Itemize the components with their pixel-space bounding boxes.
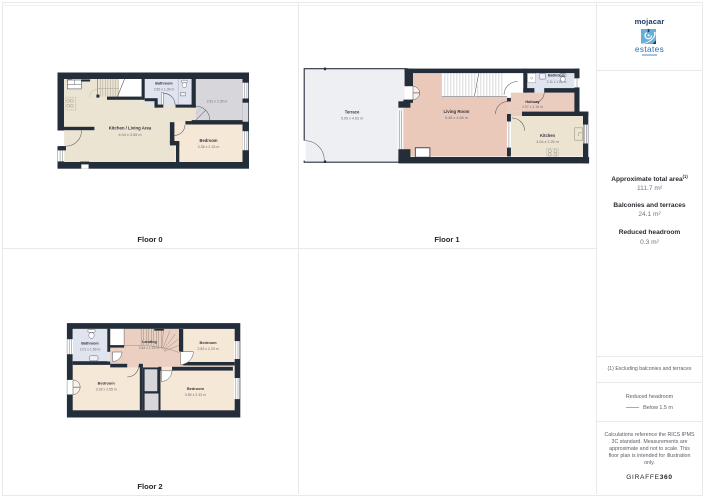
svg-text:Kitchen: Kitchen — [540, 133, 556, 138]
svg-text:Bedroom: Bedroom — [187, 386, 205, 391]
svg-text:3.36 x 2.15 m: 3.36 x 2.15 m — [198, 145, 220, 149]
svg-text:Terrace: Terrace — [345, 109, 360, 114]
svg-text:Bathroom: Bathroom — [81, 342, 99, 346]
svg-text:Bathroom: Bathroom — [548, 74, 565, 78]
svg-text:Bedroom: Bedroom — [200, 138, 218, 143]
svg-text:5.46 x 4.66 m: 5.46 x 4.66 m — [445, 116, 468, 120]
svg-text:Landing: Landing — [142, 340, 157, 344]
svg-text:2.97 x 1.16 m: 2.97 x 1.16 m — [522, 105, 543, 109]
svg-text:2.64 x 1.24 m: 2.64 x 1.24 m — [139, 346, 160, 350]
svg-text:3.89 x 2.33 m: 3.89 x 2.33 m — [185, 393, 206, 397]
svg-text:2.11 x 1.51 m: 2.11 x 1.51 m — [547, 80, 567, 84]
svg-text:5.05 x 4.63 m: 5.05 x 4.63 m — [341, 116, 363, 120]
svg-text:2.50 x 1.39 m: 2.50 x 1.39 m — [154, 88, 175, 92]
svg-text:3.18 x 2.55 m: 3.18 x 2.55 m — [96, 387, 117, 391]
svg-text:2.61 x 2.39 m: 2.61 x 2.39 m — [207, 99, 228, 103]
svg-text:Bedroom: Bedroom — [98, 381, 116, 386]
svg-text:2.01 x 1.59 m: 2.01 x 1.59 m — [80, 347, 101, 351]
svg-text:2.83 x 2.29 m: 2.83 x 2.29 m — [197, 347, 218, 351]
svg-text:Bathroom: Bathroom — [155, 82, 173, 86]
svg-text:Bedroom: Bedroom — [200, 340, 218, 345]
svg-text:Kitchen / Living Area: Kitchen / Living Area — [109, 125, 152, 130]
svg-text:Hallway: Hallway — [525, 100, 540, 104]
svg-text:4.04 x 3.55 m: 4.04 x 3.55 m — [118, 133, 141, 137]
svg-text:Living Room: Living Room — [443, 109, 469, 114]
svg-text:4.04 x 2.25 m: 4.04 x 2.25 m — [536, 140, 558, 144]
